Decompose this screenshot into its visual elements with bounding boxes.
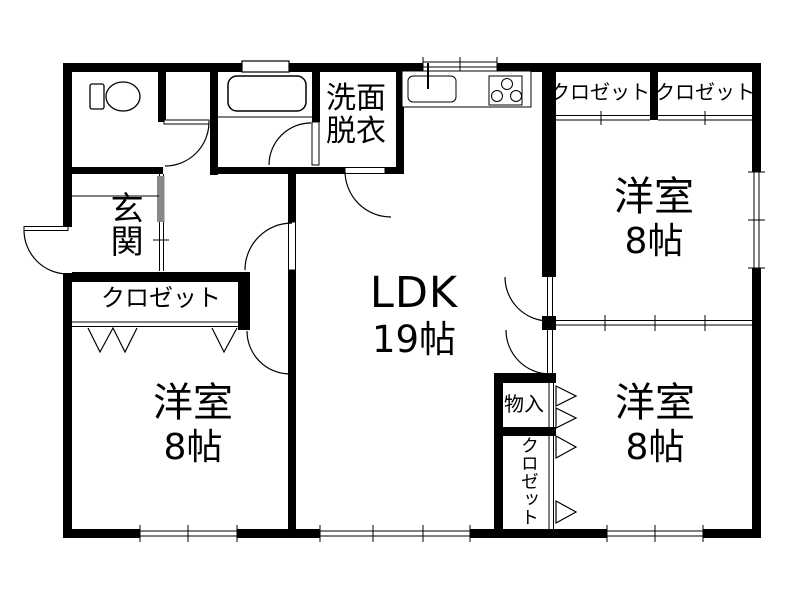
toilet-door bbox=[164, 120, 209, 166]
room-top-right-size: 8帖 bbox=[594, 221, 714, 263]
top-right-room-door bbox=[505, 277, 553, 321]
room-top-right-label: 洋室 bbox=[594, 174, 714, 220]
bifold-door-triangle bbox=[556, 408, 576, 428]
outer-wall-left bbox=[63, 63, 72, 538]
ldk-east-wall-junction bbox=[542, 316, 556, 330]
entrance-closet-label: クロゼット bbox=[94, 282, 228, 314]
bifold-door-triangle bbox=[556, 436, 576, 458]
bifold-door-triangle bbox=[556, 386, 576, 406]
storage-top-wall bbox=[494, 373, 556, 383]
closet-top-right-label: クロゼット bbox=[656, 78, 754, 106]
storage-label: 物入 bbox=[498, 390, 550, 418]
bifold-door-triangle bbox=[556, 501, 576, 523]
room-partition-sliding bbox=[556, 315, 752, 331]
bottom-window-right-room bbox=[607, 525, 703, 542]
washroom-label-line1: 洗面 bbox=[326, 82, 386, 115]
closet-track-top-left bbox=[556, 111, 650, 125]
bath-window bbox=[242, 61, 289, 72]
bottom-window-ldk bbox=[320, 525, 470, 542]
stove-icon bbox=[489, 76, 522, 105]
room-bottom-left-label: 洋室 bbox=[132, 380, 254, 426]
right-window-top-room bbox=[748, 172, 765, 268]
bath-door bbox=[269, 122, 319, 165]
hall-ldk-wall-upper bbox=[288, 167, 296, 222]
outer-wall-right bbox=[752, 63, 761, 538]
room-bottom-left-size: 8帖 bbox=[132, 426, 254, 470]
washroom-label: 洗面 脱衣 bbox=[318, 80, 394, 150]
room-bottom-right-label: 洋室 bbox=[594, 380, 716, 426]
closet-track-top-right bbox=[658, 111, 752, 125]
hall-ldk-wall-lower bbox=[288, 270, 296, 530]
bottom-window-left-room bbox=[140, 525, 237, 542]
bathtub-icon bbox=[218, 76, 312, 117]
washroom-door bbox=[345, 168, 391, 218]
hall-ldk-door bbox=[245, 222, 296, 270]
bath-left-wall bbox=[210, 63, 218, 175]
floorplan-canvas: 洗面 脱衣 玄関 クロゼット LDK 19帖 洋室 8帖 洋室 8帖 洋室 8帖… bbox=[0, 0, 800, 600]
toilet-right-wall bbox=[158, 63, 166, 122]
entrance-closet-front bbox=[72, 322, 238, 352]
ldk-label: LDK bbox=[355, 271, 473, 317]
bottom-left-room-door bbox=[247, 331, 290, 374]
entrance-door bbox=[24, 227, 72, 275]
room-bottom-right-size: 8帖 bbox=[594, 426, 716, 470]
closet-top-left-label: クロゼット bbox=[550, 78, 650, 106]
washroom-label-line2: 脱衣 bbox=[326, 115, 386, 148]
bifold-door-zigzag bbox=[212, 328, 237, 352]
bottom-right-room-door bbox=[506, 330, 553, 374]
bifold-door-zigzag bbox=[88, 328, 137, 352]
closet-bottom-right-label: クロゼット bbox=[515, 429, 541, 533]
bath-washroom-bottom-wall bbox=[210, 167, 347, 174]
toilet-bottom-wall bbox=[63, 167, 163, 174]
storage-closet-front bbox=[549, 383, 576, 529]
toilet-icon bbox=[90, 82, 140, 111]
entrance-label: 玄関 bbox=[104, 182, 144, 266]
washroom-bottom-stub bbox=[385, 167, 404, 174]
ldk-size-label: 19帖 bbox=[355, 319, 473, 361]
entrance-closet-top-wall bbox=[63, 272, 250, 282]
entrance-closet-right-wall bbox=[238, 282, 250, 330]
